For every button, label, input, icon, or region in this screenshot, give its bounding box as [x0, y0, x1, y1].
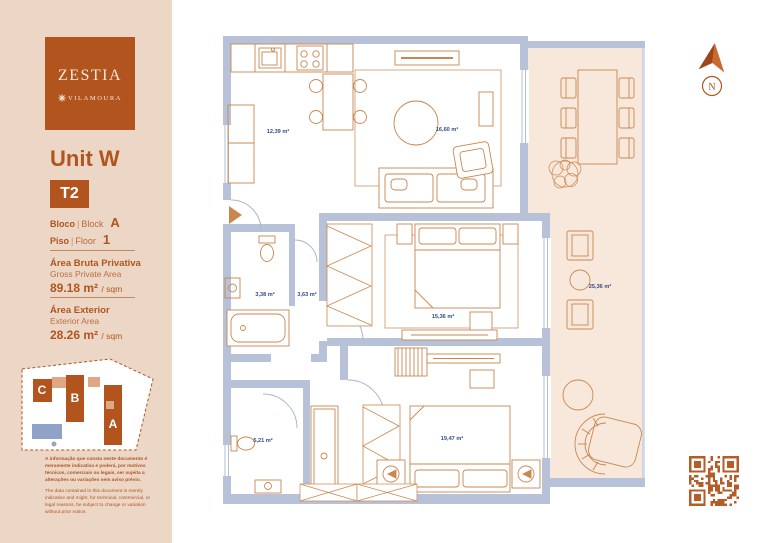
room-label-hall: 3,63 m²: [297, 291, 316, 298]
site-block-label: A: [109, 417, 118, 431]
compass-letter: N: [708, 82, 715, 93]
compass: N: [690, 40, 734, 102]
unit-meta: Bloco|BlockA Piso|Floor1: [50, 215, 120, 249]
gross-area-title-pt: Área Bruta Privativa: [50, 258, 141, 269]
site-detail-dot: [52, 442, 57, 447]
site-block-label: C: [38, 383, 47, 397]
qr-code: [688, 456, 740, 506]
floor-label-pt: Piso: [50, 236, 69, 246]
bedroom1-furniture: [385, 224, 518, 340]
flower-asterisk-icon: [58, 94, 66, 102]
site-detail: [106, 401, 114, 409]
exterior-area-section: Área Exterior Exterior Area 28.26 m² / s…: [50, 305, 122, 342]
bedroom2-furniture: [363, 348, 540, 492]
room-label-bathroom2: 5,21 m²: [253, 437, 272, 444]
gross-area-suffix: / sqm: [101, 284, 122, 294]
sidebar: ZESTIA VILAMOURA Unit W T2 Bloco|BlockA …: [0, 0, 172, 543]
exterior-area-title-en: Exterior Area: [50, 316, 122, 326]
room-label-living: 16,60 m²: [436, 126, 459, 133]
bathroom2-fixtures: [231, 406, 338, 493]
divider: [50, 250, 135, 251]
site-block-label: B: [71, 391, 80, 405]
bathroom1-fixtures: [225, 236, 289, 346]
floor-value: 1: [103, 232, 110, 247]
room-label-terrace: 25,36 m²: [589, 283, 612, 290]
gross-area-section: Área Bruta Privativa Gross Private Area …: [50, 258, 141, 295]
disclaimer-en: The data contained in this document is m…: [45, 489, 158, 517]
gross-area-value: 89.18 m²: [50, 281, 98, 295]
disclaimer: A informação que consta neste documento …: [45, 457, 158, 521]
floor-plan: 12,39 m² 16,60 m² 3,38 m² 3,63 m² 15,36 …: [215, 28, 655, 520]
room-label-bedroom1: 15,36 m²: [432, 313, 455, 320]
site-wing: [52, 377, 66, 388]
brochure-page: ZESTIA VILAMOURA Unit W T2 Bloco|BlockA …: [0, 0, 768, 543]
closets: [300, 484, 417, 501]
living-furniture: [355, 51, 501, 208]
exterior-area-value: 28.26 m²: [50, 328, 98, 342]
block-label-pt: Bloco: [50, 219, 75, 229]
hall-wardrobe: [327, 224, 372, 326]
unit-title: Unit W: [50, 146, 120, 172]
block-value: A: [110, 215, 119, 230]
entrance-arrow-icon: [229, 206, 242, 224]
compass-needle-icon: [698, 42, 727, 73]
room-label-bedroom2: 19,47 m²: [441, 435, 464, 442]
brand-logo: ZESTIA VILAMOURA: [45, 37, 135, 130]
brand-location: VILAMOURA: [68, 95, 122, 102]
site-wing: [88, 377, 100, 387]
typology-badge: T2: [50, 180, 89, 208]
floor-label-en: Floor: [75, 236, 96, 246]
floor-row: Piso|Floor1: [50, 232, 120, 249]
divider: [50, 297, 135, 298]
brand-name: ZESTIA: [58, 67, 122, 85]
site-map-block-a: [104, 385, 122, 445]
kitchen-furniture: [228, 44, 367, 183]
site-map-pool: [32, 424, 62, 439]
block-label-en: Block: [81, 219, 103, 229]
exterior-area-title-pt: Área Exterior: [50, 305, 122, 316]
room-label-kitchen: 12,39 m²: [267, 128, 290, 135]
exterior-area-suffix: / sqm: [101, 331, 122, 341]
gross-area-title-en: Gross Private Area: [50, 269, 141, 279]
room-label-bathroom1: 3,38 m²: [255, 291, 274, 298]
block-row: Bloco|BlockA: [50, 215, 120, 232]
disclaimer-pt: A informação que consta neste documento …: [45, 457, 158, 485]
